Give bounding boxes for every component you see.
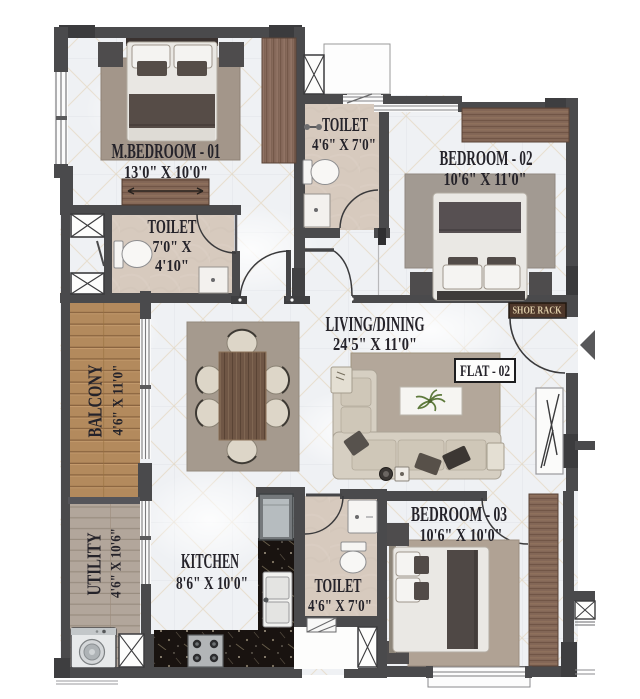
svg-text:SHOE RACK: SHOE RACK	[513, 306, 562, 317]
svg-text:13'0" X 10'0": 13'0" X 10'0"	[124, 162, 208, 182]
svg-text:TOILET: TOILET	[148, 216, 197, 238]
svg-text:4'6" X 11'0": 4'6" X 11'0"	[110, 365, 126, 436]
svg-text:TOILET: TOILET	[315, 575, 362, 597]
svg-text:7'0" X: 7'0" X	[153, 237, 193, 256]
svg-text:BEDROOM - 02: BEDROOM - 02	[440, 146, 533, 170]
svg-text:BEDROOM - 03: BEDROOM - 03	[411, 502, 507, 526]
svg-text:24'5" X 11'0": 24'5" X 11'0"	[333, 334, 417, 354]
svg-text:10'6" X 11'0": 10'6" X 11'0"	[444, 169, 527, 189]
svg-text:KITCHEN: KITCHEN	[181, 549, 239, 573]
svg-text:UTILITY: UTILITY	[84, 532, 106, 595]
svg-text:FLAT - 02: FLAT - 02	[460, 363, 510, 380]
svg-text:4'10": 4'10"	[155, 256, 189, 275]
svg-text:10'6" X 10'0": 10'6" X 10'0"	[420, 525, 503, 545]
svg-text:4'6" X 7'0": 4'6" X 7'0"	[308, 596, 372, 615]
svg-text:4'6" X 7'0": 4'6" X 7'0"	[312, 135, 376, 154]
svg-text:LIVING/DINING: LIVING/DINING	[326, 312, 425, 336]
svg-text:M.BEDROOM - 01: M.BEDROOM - 01	[112, 139, 221, 163]
svg-text:BALCONY: BALCONY	[85, 364, 107, 437]
svg-text:TOILET: TOILET	[322, 114, 368, 136]
svg-text:4'6" X 10'6": 4'6" X 10'6"	[108, 528, 124, 598]
svg-text:8'6" X 10'0": 8'6" X 10'0"	[176, 573, 248, 593]
